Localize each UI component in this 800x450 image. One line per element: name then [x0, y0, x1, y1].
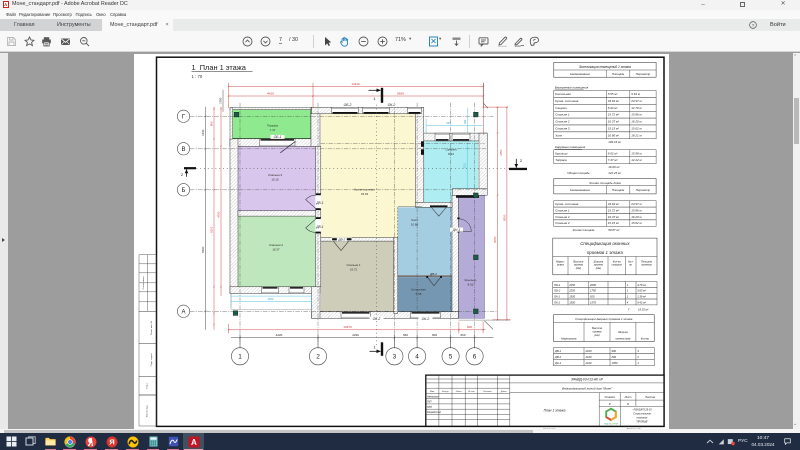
- svg-text:проема (мм): проема (мм): [615, 336, 630, 340]
- svg-text:Спальня 1: Спальня 1: [555, 113, 570, 117]
- svg-text:Маркировка: Маркировка: [561, 336, 577, 340]
- svg-text:9690: 9690: [397, 92, 404, 96]
- svg-text:660: 660: [402, 333, 407, 337]
- svg-text:Высота: Высота: [573, 259, 584, 263]
- svg-text:15.72 м²: 15.72 м²: [607, 113, 619, 117]
- svg-text:Периметр: Периметр: [635, 188, 650, 192]
- svg-text:ОК-2: ОК-2: [554, 301, 561, 305]
- svg-text:16.20 м: 16.20 м: [631, 215, 641, 219]
- svg-text:2: 2: [519, 158, 522, 163]
- svg-text:Крыльцо: Крыльцо: [555, 152, 567, 156]
- svg-text:106.16 м²: 106.16 м²: [608, 140, 622, 144]
- svg-text:15.15 м²: 15.15 м²: [607, 127, 619, 131]
- svg-text:Инв. № подл.: Инв. № подл.: [145, 404, 148, 417]
- svg-text:Лист: Лист: [623, 395, 632, 399]
- svg-text:Я: Я: [109, 438, 114, 447]
- svg-text:Взам. инв. №: Взам. инв. №: [150, 321, 153, 335]
- svg-text:Подп.: Подп.: [146, 383, 148, 389]
- svg-text:12.22 м: 12.22 м: [631, 158, 641, 162]
- svg-text:Спальня 3: Спальня 3: [555, 127, 570, 131]
- svg-text:ровка: ровка: [555, 264, 563, 267]
- svg-text:15.62 м: 15.62 м: [631, 221, 641, 225]
- svg-text:ДВ-2: ДВ-2: [554, 355, 562, 359]
- svg-text:(мм): (мм): [575, 266, 580, 270]
- svg-text:ДВ-1: ДВ-1: [315, 225, 323, 229]
- svg-text:1 : 70: 1 : 70: [191, 74, 202, 79]
- svg-text:16.37: 16.37: [272, 248, 280, 252]
- svg-text:13970: 13970: [343, 325, 352, 329]
- svg-text:ДВ-2: ДВ-2: [429, 272, 437, 276]
- svg-text:ДВ-2: ДВ-2: [337, 238, 345, 242]
- svg-text:122.25 м²: 122.25 м²: [608, 171, 622, 175]
- svg-text:16.37 м²: 16.37 м²: [607, 120, 619, 124]
- svg-text:1: 1: [373, 96, 376, 101]
- svg-text:2100: 2100: [584, 361, 591, 365]
- svg-text:5.55: 5.55: [415, 292, 421, 296]
- svg-text:3.83 м²: 3.83 м²: [637, 289, 646, 293]
- svg-text:920: 920: [590, 295, 595, 299]
- svg-text:6: 6: [472, 354, 476, 361]
- svg-text:Крыльцо: Крыльцо: [464, 278, 476, 282]
- svg-text:Дата: Дата: [499, 391, 507, 393]
- svg-text:Разработал: Разработал: [427, 411, 442, 414]
- svg-text:2: 2: [180, 172, 183, 177]
- svg-text:2090: 2090: [589, 283, 596, 287]
- svg-text:Наименование: Наименование: [570, 72, 590, 76]
- svg-text:Холл: Холл: [411, 218, 418, 222]
- svg-text:18.21 м: 18.21 м: [631, 134, 641, 138]
- svg-text:Кухня-гостиная: Кухня-гостиная: [354, 187, 375, 191]
- svg-text:600: 600: [431, 333, 436, 337]
- svg-text:Санузел: Санузел: [555, 106, 567, 110]
- svg-text:2100: 2100: [584, 349, 591, 353]
- svg-text:Марки-: Марки-: [556, 259, 565, 263]
- svg-text:Наименование: Наименование: [570, 188, 590, 192]
- svg-text:2: 2: [316, 354, 320, 361]
- svg-text:Экспликация помещений 1 этажа: Экспликация помещений 1 этажа: [579, 65, 631, 69]
- svg-text:ОБ-2: ОБ-2: [554, 289, 561, 293]
- svg-text:Спецификация дверных проемов 1: Спецификация дверных проемов 1 этажа: [575, 317, 632, 321]
- svg-text:5390: 5390: [201, 246, 205, 253]
- svg-text:створок: створок: [611, 264, 622, 267]
- svg-text:компания: компания: [636, 416, 647, 419]
- svg-text:Площадь: Площадь: [611, 72, 624, 76]
- svg-text:4400: 4400: [267, 297, 273, 301]
- svg-text:15.86 м: 15.86 м: [631, 209, 641, 213]
- svg-text:Кол.уч: Кол.уч: [442, 391, 449, 393]
- svg-text:Кол-во: Кол-во: [640, 336, 649, 340]
- svg-text:900: 900: [209, 121, 213, 126]
- svg-text:Терраса: Терраса: [266, 123, 277, 127]
- svg-text:Периметр: Периметр: [635, 72, 650, 76]
- svg-text:7.47: 7.47: [269, 128, 275, 132]
- svg-text:Спецификация оконных: Спецификация оконных: [580, 241, 630, 246]
- svg-text:3: 3: [392, 354, 396, 361]
- svg-text:2110: 2110: [463, 163, 466, 169]
- svg-text:Внутренние помещения: Внутренние помещения: [554, 86, 588, 90]
- svg-text:660: 660: [460, 333, 465, 337]
- svg-text:5.55 м²: 5.55 м²: [607, 92, 618, 96]
- svg-text:15.86 м: 15.86 м: [631, 113, 641, 117]
- svg-text:800: 800: [611, 355, 616, 359]
- svg-text:12.70 м: 12.70 м: [631, 106, 641, 110]
- svg-text:Начальник: Начальник: [427, 396, 440, 399]
- svg-text:4.70 м²: 4.70 м²: [637, 283, 646, 287]
- svg-text:Площадь: Площадь: [640, 259, 652, 263]
- svg-text:Спальня 1: Спальня 1: [346, 263, 360, 267]
- svg-text:1: 1: [373, 344, 376, 349]
- svg-text:600: 600: [466, 325, 471, 329]
- svg-text:Подп. и дата: Подп. и дата: [151, 353, 153, 367]
- svg-text:ОК-1: ОК-1: [554, 295, 561, 299]
- svg-text:15.98 м: 15.98 м: [631, 152, 641, 156]
- svg-text:23.97 м: 23.97 м: [630, 99, 641, 103]
- svg-text:Котельная: Котельная: [555, 92, 571, 96]
- svg-text:2250: 2250: [568, 289, 575, 293]
- svg-text:1790: 1790: [218, 97, 222, 104]
- svg-text:Санузел: Санузел: [445, 147, 457, 151]
- svg-text:Спальня 2: Спальня 2: [555, 215, 570, 219]
- svg-text:80.87 м²: 80.87 м²: [608, 228, 620, 232]
- svg-text:7.47 м²: 7.47 м²: [607, 158, 618, 162]
- svg-text:1: 1: [238, 354, 242, 361]
- svg-text:1700: 1700: [590, 289, 596, 293]
- svg-text:Терраса: Терраса: [555, 158, 567, 162]
- svg-text:1.38 м²: 1.38 м²: [637, 295, 646, 299]
- svg-text:8.94: 8.94: [448, 152, 454, 156]
- svg-text:ГИП: ГИП: [427, 406, 432, 409]
- svg-text:Подпись: Подпись: [483, 390, 493, 393]
- svg-text:A: A: [191, 438, 197, 447]
- svg-text:Ширина: Ширина: [593, 259, 603, 263]
- svg-text:Холл: Холл: [554, 134, 562, 138]
- svg-text:ДВ-1: ДВ-1: [315, 201, 323, 205]
- svg-text:4230: 4230: [352, 333, 359, 337]
- svg-text:1500: 1500: [569, 301, 575, 305]
- svg-text:Ширина: Ширина: [618, 330, 628, 334]
- svg-text:8.62 м²: 8.62 м²: [607, 152, 618, 156]
- svg-text:Жилая площадь дома: Жилая площадь дома: [588, 181, 621, 185]
- svg-text:15.15 м²: 15.15 м²: [607, 221, 619, 225]
- svg-text:5: 5: [448, 354, 452, 361]
- svg-text:14110: 14110: [351, 82, 360, 86]
- svg-text:900: 900: [611, 349, 616, 353]
- svg-text:ДН-1: ДН-1: [554, 361, 562, 365]
- svg-text:4220: 4220: [275, 333, 282, 337]
- svg-text:проемов 1 этажа: проемов 1 этажа: [586, 250, 623, 255]
- svg-text:Р: Р: [608, 402, 610, 406]
- svg-text:Спальня 2: Спальня 2: [555, 120, 570, 124]
- svg-text:1_План 1 этажа: 1_План 1 этажа: [191, 63, 246, 72]
- svg-text:33.63: 33.63: [360, 192, 368, 196]
- svg-text:Строительная: Строительная: [633, 412, 651, 415]
- svg-text:Жилая площадь:: Жилая площадь:: [571, 228, 595, 232]
- svg-text:19.33 м²: 19.33 м²: [638, 307, 648, 311]
- svg-text:Общая площадь:: Общая площадь:: [567, 171, 590, 175]
- svg-text:9.42 м²: 9.42 м²: [637, 301, 646, 305]
- svg-text:+7(903)975-25-35: +7(903)975-25-35: [632, 408, 652, 411]
- svg-text:23.97 м: 23.97 м: [630, 202, 641, 206]
- svg-text:7: 7: [627, 307, 629, 311]
- svg-text:?: ?: [752, 23, 755, 28]
- svg-text:Кол-во: Кол-во: [612, 259, 621, 263]
- svg-text:9.64 м: 9.64 м: [631, 92, 640, 96]
- svg-text:10.80: 10.80: [410, 223, 418, 227]
- svg-text:Кухня- гостиная: Кухня- гостиная: [555, 99, 578, 103]
- svg-text:33.63 м²: 33.63 м²: [607, 99, 619, 103]
- svg-text:920: 920: [446, 121, 451, 125]
- svg-text:ДН-1: ДН-1: [451, 228, 460, 232]
- svg-text:15.72 м²: 15.72 м²: [607, 209, 619, 213]
- svg-text:16.09 м²: 16.09 м²: [608, 165, 620, 169]
- svg-text:ОБ-1: ОБ-1: [554, 283, 561, 287]
- svg-text:Спальня 3: Спальня 3: [267, 173, 281, 177]
- svg-text:Согласовано: Согласовано: [143, 276, 145, 290]
- svg-text:Листов: Листов: [644, 395, 655, 399]
- svg-text:ОК-2: ОК-2: [372, 317, 380, 321]
- svg-text:ОБ-1: ОБ-1: [273, 135, 281, 139]
- svg-text:ЗФмВД-03-п13-АР, кР: ЗФмВД-03-п13-АР, кР: [570, 378, 603, 382]
- svg-text:ДВ-1: ДВ-1: [554, 349, 562, 353]
- svg-text:Котельная: Котельная: [411, 287, 425, 291]
- svg-text:Площадь: Площадь: [611, 188, 624, 192]
- svg-text:2250: 2250: [568, 283, 575, 287]
- svg-text:2100: 2100: [584, 355, 591, 359]
- svg-text:Спальня 1: Спальня 1: [555, 209, 570, 213]
- svg-text:1500: 1500: [569, 295, 575, 299]
- svg-text:1570: 1570: [590, 301, 596, 305]
- svg-text:ОК-2: ОК-2: [387, 103, 395, 107]
- svg-text:15.15: 15.15: [271, 178, 279, 182]
- svg-text:№ док: № док: [468, 390, 475, 393]
- svg-text:Б: Б: [181, 188, 185, 194]
- svg-text:проема: проема: [592, 331, 602, 334]
- svg-text:1440: 1440: [201, 129, 205, 136]
- svg-text:4420: 4420: [267, 92, 274, 96]
- svg-text:План 1 этажа: План 1 этажа: [543, 408, 565, 412]
- svg-text:Индивидуальный жилой дом "Моне: Индивидуальный жилой дом "Моне": [561, 387, 612, 391]
- svg-text:(мм): (мм): [595, 266, 600, 270]
- svg-text:В: В: [181, 147, 185, 153]
- svg-text:4: 4: [415, 354, 419, 361]
- svg-text:6050: 6050: [493, 236, 497, 243]
- svg-text:проемов: проемов: [641, 264, 652, 267]
- svg-text:Высота: Высота: [592, 326, 603, 330]
- svg-text:8.94 м²: 8.94 м²: [607, 106, 618, 110]
- svg-text:Стадия: Стадия: [604, 395, 615, 399]
- svg-text:ОК-2: ОК-2: [421, 317, 429, 321]
- svg-text:Лист: Лист: [454, 391, 461, 393]
- svg-text:600: 600: [464, 119, 467, 124]
- svg-text:33.63 м²: 33.63 м²: [607, 202, 619, 206]
- svg-text:Кухня- гостиная: Кухня- гостиная: [555, 202, 578, 206]
- svg-text:Изм.: Изм.: [429, 391, 434, 393]
- svg-text:15.72: 15.72: [349, 268, 357, 272]
- svg-text:"ПРОРЫВ": "ПРОРЫВ": [635, 420, 647, 423]
- svg-text:9101: 9101: [209, 226, 213, 233]
- svg-text:МОДУЛЬ-СТРОЙ: МОДУЛЬ-СТРОЙ: [604, 422, 618, 425]
- svg-text:Спальня 3: Спальня 3: [555, 221, 570, 225]
- svg-text:16.37 м²: 16.37 м²: [607, 215, 619, 219]
- svg-text:Кол-: Кол-: [628, 259, 633, 263]
- svg-text:1450: 1450: [499, 149, 503, 156]
- svg-text:(мм): (мм): [594, 333, 599, 337]
- svg-text:Наружные помещения: Наружные помещения: [554, 145, 585, 149]
- svg-text:8550: 8550: [502, 214, 506, 221]
- svg-text:4750: 4750: [216, 211, 220, 218]
- svg-text:Спальня 2: Спальня 2: [268, 243, 282, 247]
- svg-text:А: А: [181, 310, 185, 316]
- svg-text:1050: 1050: [611, 361, 617, 365]
- svg-text:8.62: 8.62: [467, 283, 473, 287]
- svg-text:ОБ-2: ОБ-2: [343, 103, 351, 107]
- svg-text:15.62 м: 15.62 м: [631, 127, 641, 131]
- svg-text:10.80 м²: 10.80 м²: [607, 134, 619, 138]
- svg-text:16.20 м: 16.20 м: [631, 120, 641, 124]
- svg-text:ГАП: ГАП: [427, 401, 432, 404]
